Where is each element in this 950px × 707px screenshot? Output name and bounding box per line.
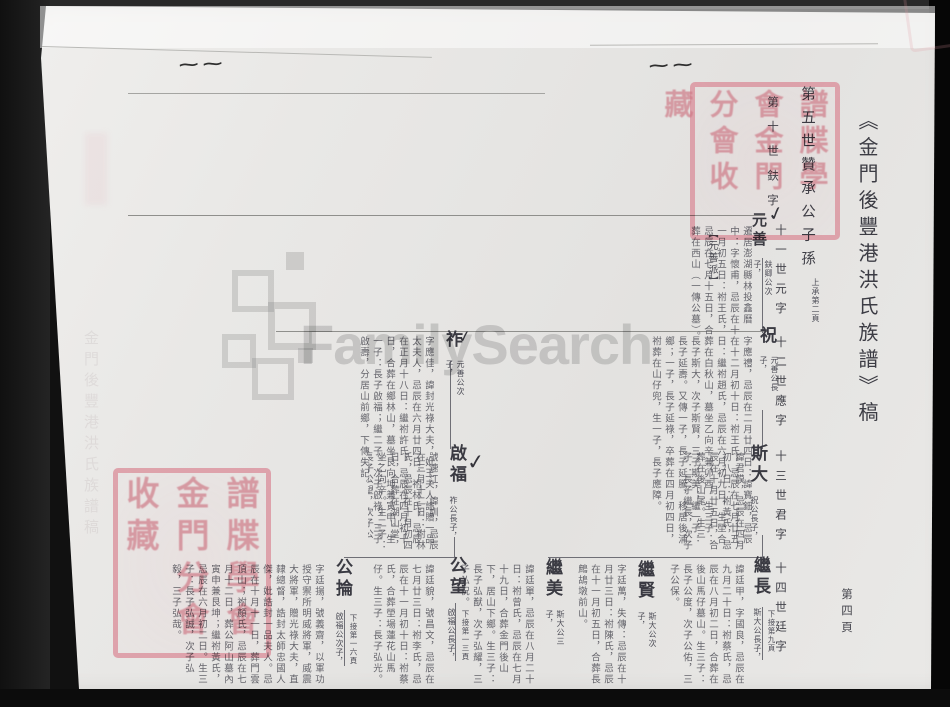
biography-text: 諱君謨，忌辰在四月初八日：祔黃氏，忌辰在十月廿五日，合葬在後山尾。生三子：長子繼…	[682, 452, 744, 552]
biography-text: 字廷萬，失傳：忌辰在十月廿三日：祔陳氏，忌辰在十一月初五日，合葬長鷓鴣墩前山。	[562, 564, 626, 688]
person-name: 公望	[444, 556, 469, 606]
section-header-note: 上承第二頁	[810, 278, 821, 338]
person-name: 公掄	[330, 558, 355, 608]
continuation-note: 下接第一三頁	[460, 610, 471, 666]
biography-text: 諱廷甲，字國良，忌辰在九月二十日：祔蔡氏，忌辰在八月初二日，合葬在後山馬仔墓山。…	[660, 564, 744, 688]
fold-line	[42, 46, 432, 58]
filiation-note: 啟福公長子，	[446, 608, 457, 664]
filiation-note: 鈇卿公次子，	[752, 260, 774, 312]
biography-text: 諱廷單，忌辰在八月二十日：祔曾氏，忌辰在七月十九日，合葬金門後山下，居山下鄉。生…	[462, 564, 534, 688]
filiation-note: 元善公長子，	[758, 356, 780, 408]
descent-line	[762, 535, 763, 558]
person-name: 繼賢	[632, 560, 657, 610]
sibling-connector-gen14-ji	[548, 557, 763, 558]
biography-text: 遷居澎湖縣林投鑫曆中：字懷甫，忌辰在十一月初五日：祔王氏，忌辰在七月十五日，合葬…	[690, 226, 752, 344]
page-content: 金門後豐港洪氏族譜稿 FamilySearch 譜牒學會金門分會收藏 譜牒學會金…	[0, 0, 950, 707]
seal-script-text: 譜牒學會金門分會收藏	[653, 89, 833, 231]
generation-marker-13: 十三世君字	[772, 450, 788, 550]
person-name: 祝	[754, 326, 779, 354]
library-seal-top-right: 譜牒學會金門分會收藏	[690, 82, 840, 240]
handwritten-checkmark: ✓	[466, 449, 486, 475]
familysearch-watermark-text: FamilySearch	[300, 312, 652, 377]
sibling-connector-gen14-gong	[344, 557, 456, 558]
filiation-note: 祚公長子，	[448, 496, 459, 542]
filiation-note: 啟福公次子，	[334, 612, 345, 666]
continuation-note: 下接第九頁	[766, 610, 777, 664]
book-title: 《金門後豐港洪氏族譜》稿	[852, 110, 881, 470]
page-number: 第四頁	[838, 588, 854, 658]
fold-line	[590, 43, 878, 46]
watermark-square	[286, 252, 304, 270]
seal-script-text: 譜牒學會金門分會收藏	[114, 476, 264, 648]
person-name: 繼美	[540, 558, 565, 608]
filiation-note: 斯大公三子，	[544, 610, 566, 662]
bleed-through-text: 金門後豐港洪氏族譜稿	[80, 330, 101, 640]
handwritten-squiggle-mark: ~~	[176, 54, 226, 74]
filiation-note: 祝公長子，	[749, 496, 760, 542]
watermark-square	[222, 334, 256, 368]
watermark-square	[252, 358, 294, 400]
filiation-note: 斯大公長子，	[752, 608, 763, 664]
seal-bleed-smudge	[85, 133, 107, 205]
handwritten-squiggle-mark: ~~	[646, 55, 696, 75]
biography-text: 諱廷貌，號昌文，忌辰在七月廿三日：祔李氏，忌辰在十一月初十日：祔蔡氏，合葬塋場蓮…	[362, 564, 434, 688]
person-name: 斯大	[745, 444, 770, 494]
seal-fragment-top-right	[902, 0, 950, 53]
rule-line	[128, 93, 545, 94]
biography-text: 號速江，諱訓，忌辰在三月十二日：祔林氏，忌辰在十月初四日，合葬在湖山堂，坐乙向辛…	[368, 452, 438, 552]
filiation-note: 斯大公次子，	[636, 612, 658, 664]
library-seal-left: 譜牒學會金門分會收藏	[113, 468, 271, 658]
continuation-note: 下接第一六頁	[348, 614, 359, 668]
person-name: 繼長	[748, 556, 773, 606]
